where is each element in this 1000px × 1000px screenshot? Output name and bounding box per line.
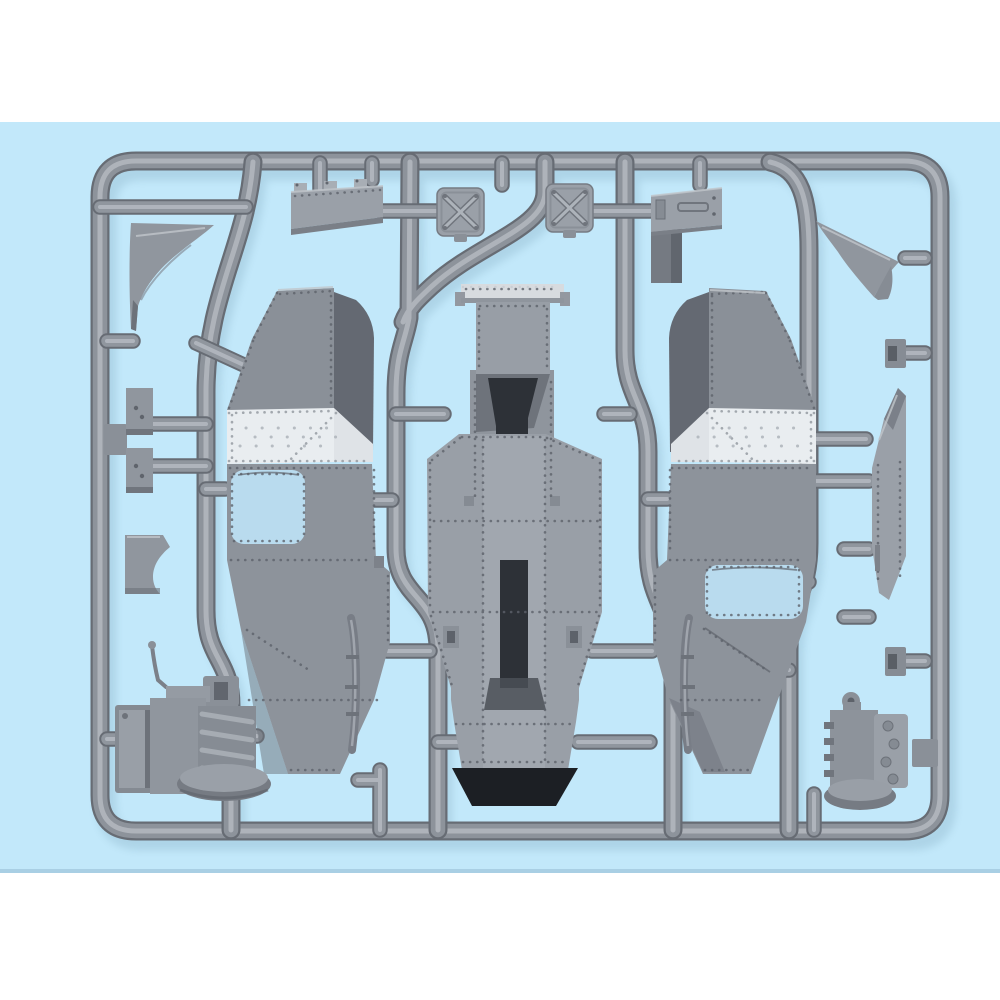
product-photo: Sprue outer frame Inner sprue runners an… [0,0,1000,1000]
backdrop-edge-line [0,869,1000,873]
vision-port-left [231,470,305,544]
frame-tab-left [104,424,127,455]
vision-port-right [705,565,803,619]
part-hatch-x-2: X-braced square hatch [546,184,593,238]
part-hatch-x-1: X-braced square hatch [437,188,484,242]
sprue-photo-canvas: Sprue outer frame Inner sprue runners an… [0,0,1000,1000]
part-small-plate-2: Small bolted plate [126,448,153,493]
part-clip-2: Mounting clip [885,647,906,676]
part-latched-plate: Latched access plate [651,188,722,236]
white-armor-band [227,408,334,464]
part-small-plate-1: Small bolted plate [126,388,153,435]
frame-tab-right [912,739,938,767]
hull-bottom-opening [452,768,578,806]
part-clip-1: Mounting clip [885,339,906,368]
